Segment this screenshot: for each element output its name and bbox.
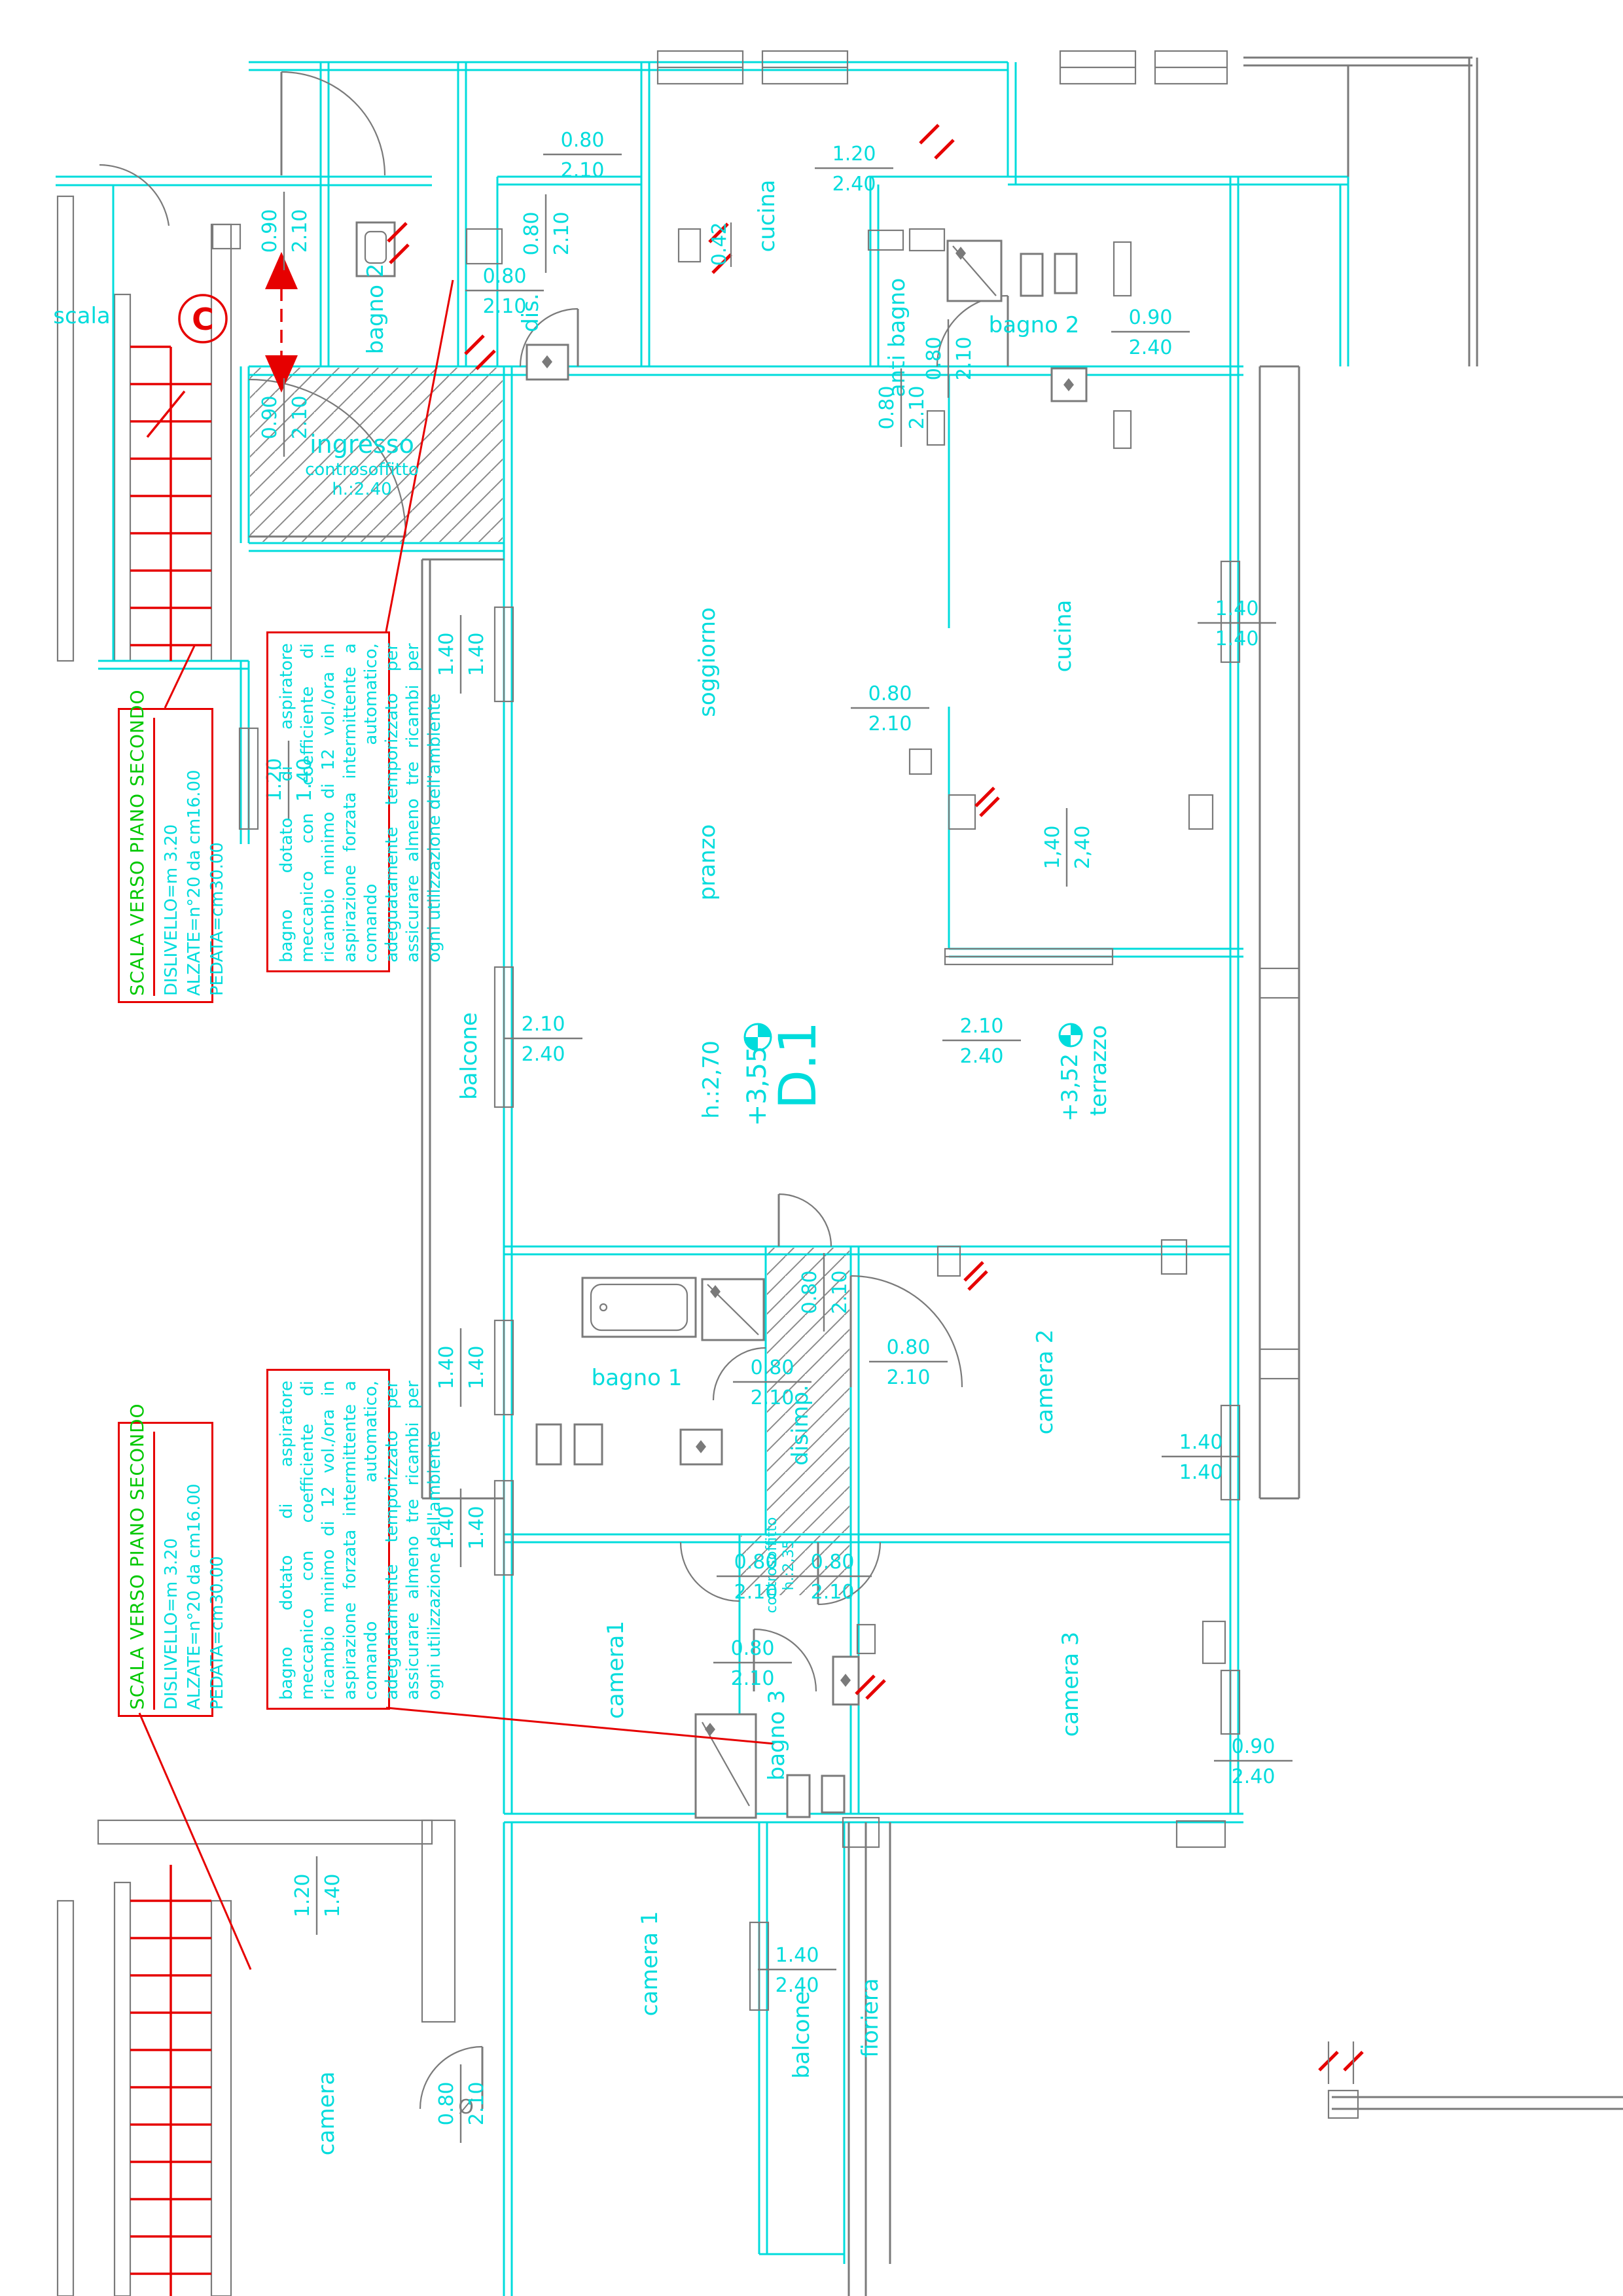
sink-bagno3 (833, 1657, 859, 1704)
ventilation-note-box-lower: bagno dotato di aspiratore meccanico con… (266, 1369, 390, 1710)
svg-text:1.40: 1.40 (1179, 1461, 1223, 1484)
stair-info-lower: SCALA VERSO PIANO SECONDO DISLIVELLO=m 3… (126, 1432, 229, 1710)
svg-text:2.10: 2.10 (522, 1013, 565, 1036)
svg-text:2.10: 2.10 (751, 1386, 794, 1409)
room-label-anti-bagno: anti bagno (884, 278, 910, 397)
svg-text:2.10: 2.10 (953, 337, 976, 381)
svg-text:2,40: 2,40 (1071, 826, 1094, 870)
svg-text:0.80: 0.80 (731, 1637, 775, 1660)
ceiling-note-line2: h.:2,35 (781, 1540, 797, 1590)
sink-bagno2 (1052, 368, 1086, 401)
svg-text:0.80: 0.80 (483, 265, 527, 288)
dim-stair-door-top: 0.902.10 (259, 192, 312, 270)
stair-info-title2: SCALA VERSO PIANO SECONDO (126, 1432, 155, 1710)
svg-text:0.80: 0.80 (734, 1551, 778, 1574)
dim-sogg-cucina-door: 0.802.10 (851, 682, 929, 735)
svg-text:2.10: 2.10 (906, 386, 929, 430)
stair-info-alzate: ALZATE=n°20 da cm16.00 (183, 718, 206, 996)
room-label-scala: scala (53, 303, 111, 329)
stair-info-dislivello: DISLIVELLO=m 3.20 (160, 718, 183, 996)
room-label-bagno2-left: bagno 2 (363, 264, 389, 355)
dim-bagno3-door: 0.802.10 (713, 1637, 792, 1690)
svg-text:1.40: 1.40 (465, 633, 488, 677)
stair-info-box-lower: SCALA VERSO PIANO SECONDO DISLIVELLO=m 3… (118, 1422, 213, 1717)
svg-text:0.90: 0.90 (1129, 306, 1173, 329)
svg-text:1.40: 1.40 (1215, 597, 1259, 620)
stair-info-pedata2: PEDATA=cm30.00 (206, 1432, 229, 1710)
stairs-lower (130, 1865, 211, 2296)
dim-camera2-door: 0.802.10 (869, 1336, 948, 1389)
svg-text:2.40: 2.40 (832, 173, 876, 196)
level-symbol-terrazzo (1060, 1024, 1082, 1046)
svg-text:1.40: 1.40 (321, 1874, 344, 1918)
room-label-balcone-bottom: balcone (789, 1991, 815, 2079)
room-label-bagno1: bagno 1 (592, 1365, 683, 1391)
shower-bagno3 (696, 1714, 756, 1818)
svg-text:2.10: 2.10 (734, 1581, 778, 1604)
gray-structures (422, 51, 1623, 2296)
svg-text:2.10: 2.10 (960, 1015, 1004, 1038)
dim-camera3-window: 0.902.40 (1214, 1735, 1293, 1788)
svg-text:2.40: 2.40 (960, 1045, 1004, 1068)
window-symbols-top (658, 51, 1227, 84)
svg-text:2.10: 2.10 (465, 2082, 488, 2126)
svg-text:0.80: 0.80 (811, 1551, 855, 1574)
stair-info-title: SCALA VERSO PIANO SECONDO (126, 718, 155, 996)
unit-label: D.1 (769, 1021, 828, 1109)
svg-text:2.10: 2.10 (561, 159, 605, 182)
room-label-bagno2-right: bagno 2 (989, 312, 1080, 338)
sink-bagno1 (681, 1430, 722, 1464)
dim-cucina-top-width: 0.42 (708, 222, 731, 266)
unit-height: h.:2,70 (698, 1040, 724, 1119)
wc-bagno1 (537, 1424, 561, 1464)
room-label-cucina-top: cucina (754, 180, 780, 253)
svg-text:0.80: 0.80 (435, 2082, 458, 2126)
dim-dis-door: 0.802.10 (520, 194, 573, 273)
svg-text:1.20: 1.20 (291, 1874, 314, 1918)
walls-cyan (56, 62, 1348, 2296)
dim-camera2-window: 1.401.40 (1162, 1431, 1240, 1484)
bidet-bagno2 (1055, 254, 1077, 293)
room-label-camera2: camera 2 (1032, 1330, 1058, 1435)
svg-text:0.90: 0.90 (1232, 1735, 1275, 1758)
room-label-pranzo: pranzo (694, 824, 721, 901)
dim-lower-window: 1.201.40 (291, 1856, 344, 1935)
svg-text:2.10: 2.10 (829, 1271, 851, 1315)
svg-text:1.40: 1.40 (1179, 1431, 1223, 1454)
bidet-bagno1 (575, 1424, 602, 1464)
ventilation-note-text-upper: bagno dotato di aspiratore meccanico con… (276, 643, 445, 963)
stair-info-pedata: PEDATA=cm30.00 (206, 718, 229, 996)
shower-bagno2 (948, 241, 1001, 301)
room-label-bagno3: bagno 3 (764, 1690, 790, 1781)
svg-text:0.80: 0.80 (751, 1356, 794, 1379)
wc-bagno3 (787, 1775, 810, 1817)
dim-cucina-terrazzo-door: 1,402,40 (1041, 808, 1094, 887)
room-label-soggiorno: soggiorno (694, 607, 721, 717)
room-label-camera-cut: camera (313, 2072, 340, 2155)
room-label-ingresso: ingresso (310, 430, 414, 459)
svg-text:0.80: 0.80 (868, 682, 912, 705)
svg-text:0.80: 0.80 (923, 337, 946, 381)
ingresso-ceiling-height: h.:2.40 (332, 480, 391, 499)
svg-text:0.80: 0.80 (798, 1271, 821, 1315)
svg-text:1.40: 1.40 (1215, 627, 1259, 650)
room-label-camera1-mid: camera1 (603, 1621, 629, 1719)
ventilation-note-box-upper: bagno dotato di aspiratore meccanico con… (266, 631, 390, 972)
svg-text:0.80: 0.80 (561, 129, 605, 152)
dim-camera1b-window: 1.402.40 (758, 1944, 836, 1997)
svg-text:2.10: 2.10 (550, 212, 573, 256)
section-letter: C (192, 302, 214, 337)
svg-text:0.80: 0.80 (520, 212, 543, 256)
svg-text:2.10: 2.10 (887, 1366, 931, 1389)
svg-text:0.42: 0.42 (708, 222, 731, 266)
room-label-camera1-bottom: camera 1 (637, 1911, 663, 2017)
unit-level: +3,55 (742, 1046, 772, 1127)
svg-text:2.10: 2.10 (811, 1581, 855, 1604)
room-label-camera3: camera 3 (1058, 1632, 1084, 1737)
svg-text:1.40: 1.40 (465, 1506, 488, 1550)
dim-cucina-window: 1.401.40 (1198, 597, 1276, 650)
svg-text:2.10: 2.10 (483, 295, 527, 318)
dim-cucina-top-window: 1.202.40 (815, 143, 893, 196)
svg-text:1.40: 1.40 (776, 1944, 819, 1967)
stair-info-box-upper: SCALA VERSO PIANO SECONDO DISLIVELLO=m 3… (118, 708, 213, 1003)
svg-text:1.40: 1.40 (465, 1346, 488, 1390)
svg-text:1.20: 1.20 (832, 143, 876, 166)
dim-terrazzo-door: 2.102.40 (942, 1015, 1021, 1068)
room-label-fioriera: fioriera (857, 1978, 883, 2057)
stair-info-upper: SCALA VERSO PIANO SECONDO DISLIVELLO=m 3… (126, 718, 229, 996)
wc-bagno2 (1021, 254, 1043, 296)
stair-info-dislivello2: DISLIVELLO=m 3.20 (160, 1432, 183, 1710)
svg-text:2.40: 2.40 (1232, 1765, 1275, 1788)
shower-bagno1 (702, 1279, 764, 1340)
svg-text:2.40: 2.40 (522, 1043, 565, 1066)
ingresso-ceiling-note: controsoffitto (305, 460, 419, 480)
room-label-balcone-left: balcone (456, 1012, 482, 1100)
svg-text:2.40: 2.40 (1129, 336, 1173, 359)
svg-text:0.80: 0.80 (876, 386, 899, 430)
dim-balcone-door: 2.102.40 (504, 1013, 582, 1066)
unit-id-cluster: D.1 +3,55 h.:2,70 +3,52 (698, 1021, 1083, 1127)
floor-plan-drawing: C scala bagno 2 dis. cucina anti bagno b… (0, 0, 1623, 2296)
dim-top-door: 0.802.10 (543, 129, 622, 182)
terrace-level: +3,52 (1057, 1053, 1083, 1122)
svg-text:1,40: 1,40 (1041, 826, 1064, 870)
room-label-cucina: cucina (1050, 600, 1077, 673)
room-label-terrazzo: terrazzo (1086, 1025, 1112, 1116)
svg-text:0.90: 0.90 (259, 396, 281, 440)
stair-info-alzate2: ALZATE=n°20 da cm16.00 (183, 1432, 206, 1710)
ventilation-note-text-lower: bagno dotato di aspiratore meccanico con… (276, 1381, 445, 1700)
svg-text:2.10: 2.10 (289, 396, 312, 440)
svg-text:0.80: 0.80 (887, 1336, 931, 1359)
boiler-dis (527, 345, 568, 380)
svg-text:2.10: 2.10 (868, 713, 912, 735)
stairs-upper (130, 347, 211, 661)
bathtub (582, 1278, 696, 1337)
svg-text:2.40: 2.40 (776, 1974, 819, 1997)
cabinet-bagno3 (822, 1776, 844, 1812)
section-marker-c: C (179, 295, 226, 342)
svg-text:0.90: 0.90 (259, 209, 281, 253)
floor-plan-sheet: C scala bagno 2 dis. cucina anti bagno b… (0, 0, 1623, 2296)
svg-text:2.10: 2.10 (731, 1667, 775, 1690)
svg-text:2.10: 2.10 (289, 209, 312, 253)
dim-bagno2-window: 0.902.40 (1111, 306, 1190, 359)
